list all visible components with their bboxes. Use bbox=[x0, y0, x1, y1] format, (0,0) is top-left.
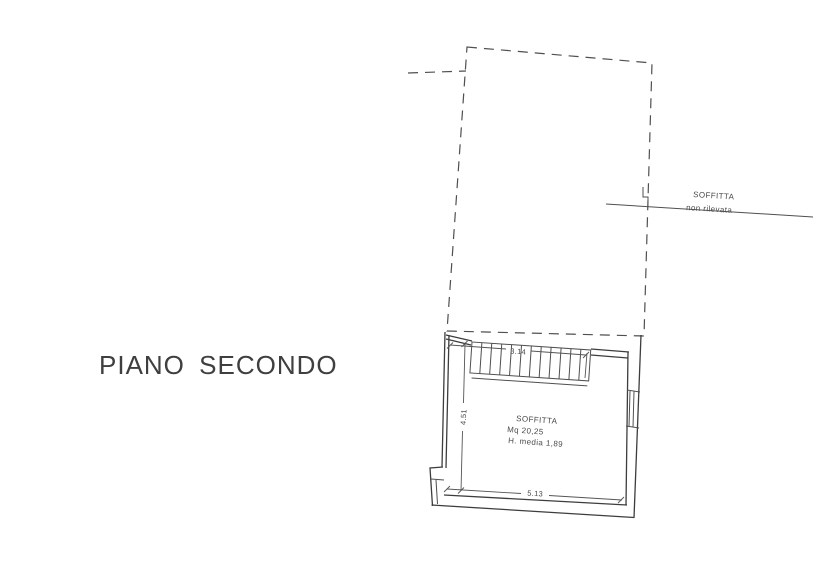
stair-tread-line bbox=[579, 349, 581, 380]
dimension-line bbox=[531, 351, 586, 355]
right-wall-inner bbox=[626, 352, 628, 505]
pilaster-line-v bbox=[436, 480, 438, 504]
stair-tread-line bbox=[569, 349, 571, 380]
floor-plan-sheet: PIANO SECONDO SOFFITTA non rilevata bbox=[0, 0, 830, 586]
dimension-value: 5.13 bbox=[527, 488, 543, 498]
room-name: SOFFITTA bbox=[516, 414, 558, 426]
bottom-wall-outer bbox=[432, 505, 635, 518]
window-glazing-line-1 bbox=[629, 391, 630, 427]
dimension-line bbox=[450, 345, 506, 349]
window-glazing-line-2 bbox=[633, 392, 634, 428]
dimension-line bbox=[549, 496, 622, 501]
attic-outline-jog bbox=[643, 187, 648, 207]
staircase bbox=[470, 342, 591, 386]
room-label: SOFFITTA Mq 20,25 H. media 1,89 bbox=[507, 414, 564, 449]
dimension-value: 3.14 bbox=[510, 346, 526, 356]
dimension-extension-line bbox=[585, 353, 587, 378]
attic-extension-dashed-line bbox=[408, 71, 466, 73]
floor-plan-drawing: SOFFITTA non rilevata bbox=[0, 0, 830, 586]
room-height: H. media 1,89 bbox=[508, 436, 564, 449]
dimension-room-depth: 4.51 bbox=[458, 341, 469, 494]
attic-note-line2: non rilevata bbox=[686, 203, 733, 215]
pilaster-line-h bbox=[431, 479, 444, 480]
top-right-wall-inner bbox=[591, 355, 628, 358]
attic-dashed-outline bbox=[447, 47, 652, 336]
top-right-wall-outer bbox=[591, 349, 629, 352]
attic-note-line1: SOFFITTA bbox=[693, 190, 735, 202]
dimension-line bbox=[464, 344, 466, 403]
dimension-value: 4.51 bbox=[458, 409, 468, 425]
room-area: Mq 20,25 bbox=[507, 425, 544, 437]
right-wall-outer bbox=[634, 335, 641, 518]
dimension-stair-length: 3.14 bbox=[447, 343, 589, 379]
left-wall-outer bbox=[442, 332, 445, 467]
left-wall-inner bbox=[446, 335, 449, 468]
dimension-line bbox=[461, 431, 463, 491]
